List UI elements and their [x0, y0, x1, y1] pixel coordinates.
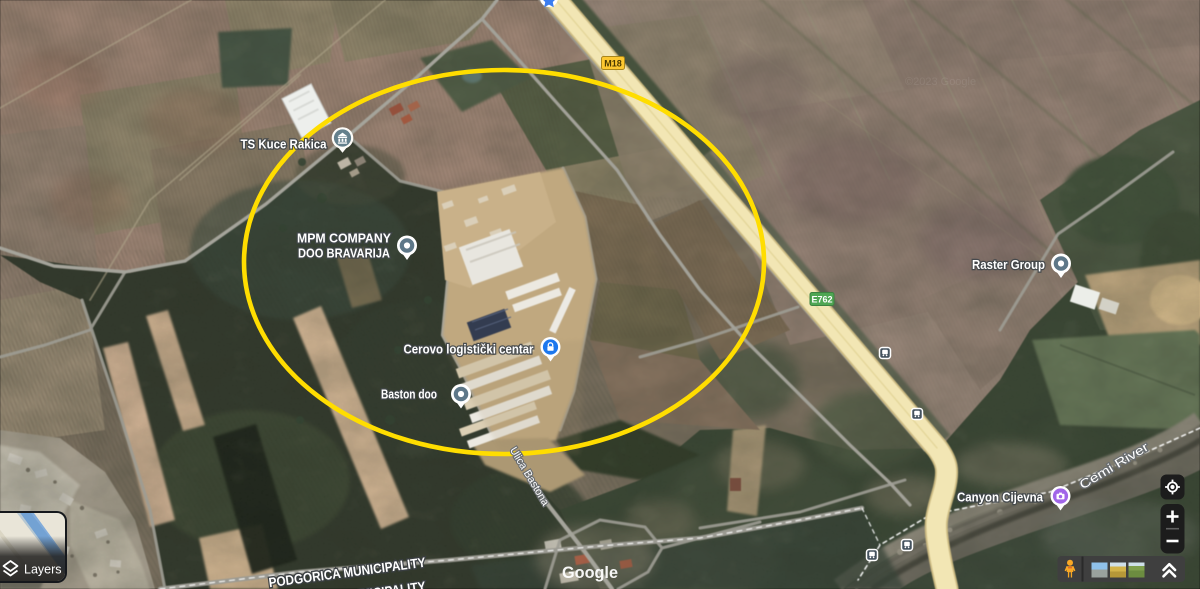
- svg-text:Baston doo: Baston doo: [381, 387, 437, 402]
- svg-text:Google: Google: [562, 564, 618, 582]
- svg-text:Canyon Cijevna: Canyon Cijevna: [957, 490, 1044, 505]
- svg-text:©2023 Google: ©2023 Google: [905, 76, 976, 88]
- svg-text:Layers: Layers: [24, 563, 62, 577]
- svg-text:TS Kuce Rakica: TS Kuce Rakica: [241, 137, 328, 152]
- svg-text:MPM COMPANY: MPM COMPANY: [297, 231, 391, 246]
- svg-text:M18: M18: [604, 59, 622, 69]
- svg-text:Cerovo logistički centar: Cerovo logistički centar: [404, 342, 534, 357]
- svg-text:DOO BRAVARIJA: DOO BRAVARIJA: [298, 246, 391, 261]
- svg-text:Raster Group: Raster Group: [972, 257, 1045, 272]
- svg-text:E762: E762: [811, 295, 832, 305]
